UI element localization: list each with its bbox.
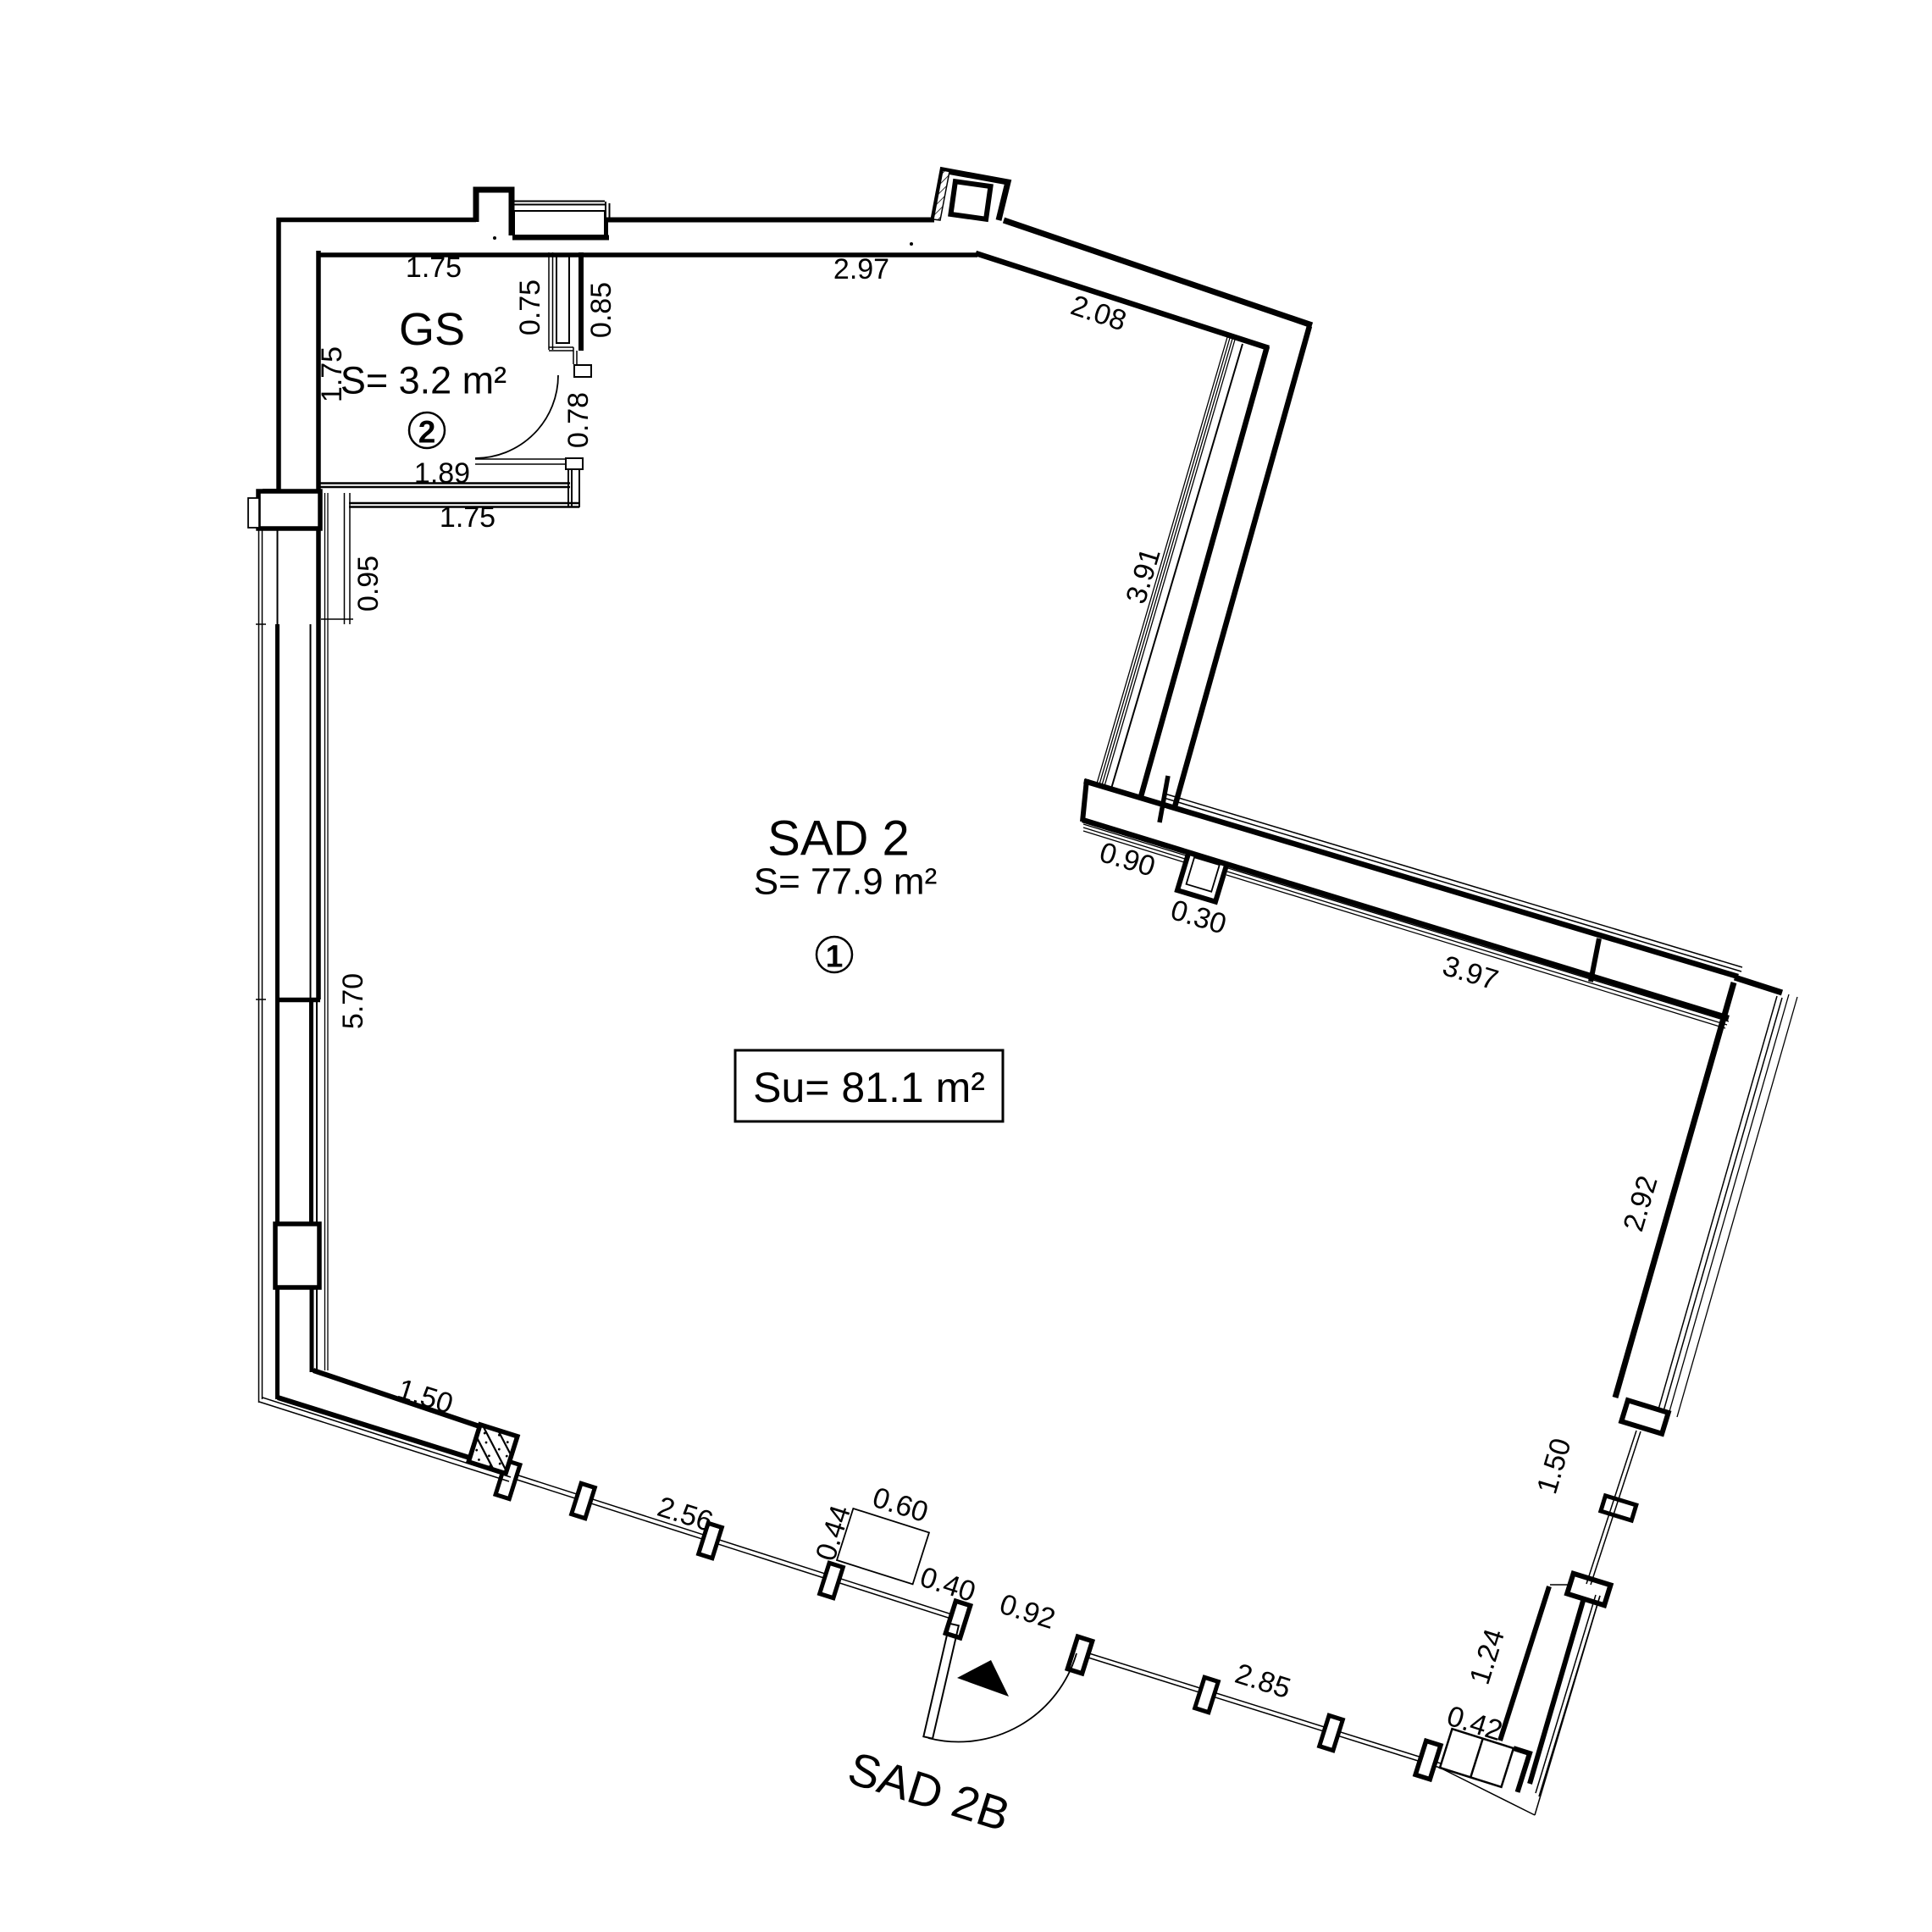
svg-text:2: 2 <box>418 415 436 450</box>
svg-text:2.97: 2.97 <box>833 253 889 285</box>
svg-text:GS: GS <box>399 304 465 355</box>
svg-text:1.75: 1.75 <box>406 252 462 284</box>
svg-text:5.70: 5.70 <box>337 973 369 1029</box>
svg-text:Su= 81.1 m²: Su= 81.1 m² <box>753 1064 985 1111</box>
svg-text:0.95: 0.95 <box>352 556 385 612</box>
svg-text:1.89: 1.89 <box>414 457 470 490</box>
svg-text:0.75: 0.75 <box>514 280 546 335</box>
svg-text:1: 1 <box>826 939 844 974</box>
svg-text:S= 3.2 m²: S= 3.2 m² <box>340 359 507 402</box>
svg-text:S= 77.9 m²: S= 77.9 m² <box>754 861 937 903</box>
svg-text:SAD 2: SAD 2 <box>767 811 910 866</box>
svg-text:0.78: 0.78 <box>562 392 595 448</box>
svg-text:1.75: 1.75 <box>316 346 348 402</box>
svg-text:0.85: 0.85 <box>585 282 617 338</box>
svg-text:1.75: 1.75 <box>440 501 495 534</box>
